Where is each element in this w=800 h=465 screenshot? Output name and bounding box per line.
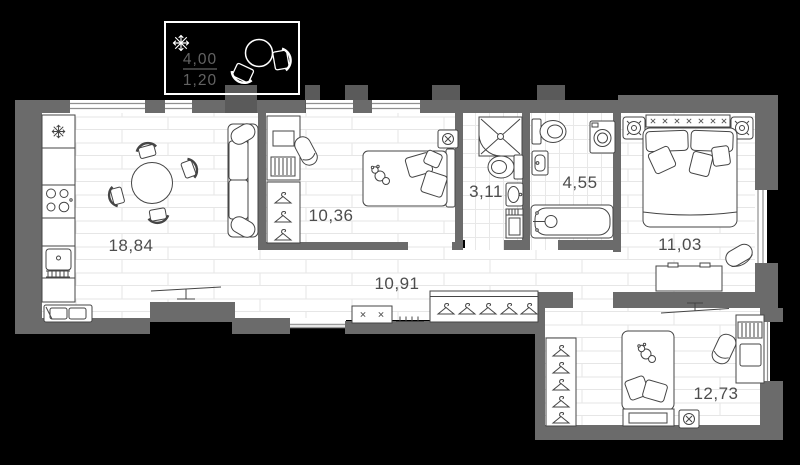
doorway-bathroom xyxy=(528,238,560,250)
doorway-bedroom-1 xyxy=(408,240,452,250)
doorway-bedroom-2 xyxy=(611,252,623,292)
washbasin xyxy=(506,183,523,206)
kitchen-counter xyxy=(42,148,75,185)
doorway-children-room xyxy=(573,290,613,310)
desk xyxy=(736,315,764,383)
window-bedroom-2 xyxy=(755,190,767,263)
balcony-table xyxy=(246,40,273,67)
wall-children-left xyxy=(535,308,545,425)
pillar xyxy=(345,85,368,100)
double-bed xyxy=(643,128,737,227)
wall-children-top-a xyxy=(535,292,573,308)
wall-children-bottom xyxy=(535,425,783,440)
room-area-label-bathroom: 4,55 xyxy=(562,173,597,192)
bathroom-cabinet xyxy=(506,209,523,238)
bench xyxy=(44,305,92,322)
toilet xyxy=(488,155,523,179)
stove-icon xyxy=(42,185,75,218)
entrance-niche-floor xyxy=(288,318,346,328)
wall-children-right-b xyxy=(760,381,783,440)
wall-right-upper xyxy=(755,113,778,190)
pillar xyxy=(225,85,257,113)
room-area-label-bedroom-1: 10,36 xyxy=(308,206,353,225)
room-area-label-children: 12,73 xyxy=(693,384,738,403)
snowflake-icon xyxy=(173,35,189,51)
wall-tv xyxy=(150,302,235,322)
kitchen-sink xyxy=(42,246,75,278)
lamp-icon xyxy=(623,117,645,139)
washing-machine-icon xyxy=(590,121,615,153)
wall-kitchen-bedroom1 xyxy=(258,113,266,250)
wall-entrance-left xyxy=(232,318,290,334)
fan-circle-x-icon xyxy=(679,410,699,428)
pillar xyxy=(537,85,565,100)
balcony-area-total: 4,00 xyxy=(183,51,217,68)
dining-table xyxy=(132,163,173,204)
kitchen-counter xyxy=(42,278,75,302)
single-bed xyxy=(622,331,674,426)
floor-plan-canvas: 4,00 1,20 xyxy=(0,0,800,465)
wall-right-mid xyxy=(755,263,778,292)
snowflake-icon xyxy=(52,125,65,138)
wardrobe xyxy=(267,182,300,243)
window-kitchen xyxy=(70,100,145,113)
washbasin xyxy=(532,151,548,175)
room-area-label-shower: 3,11 xyxy=(469,182,503,201)
electrical-panel xyxy=(352,306,392,323)
floor-plan-screenshot: 4,00 1,20 xyxy=(0,0,800,465)
room-area-label-kitchen-living: 18,84 xyxy=(108,236,153,255)
window-bedroom-1-a xyxy=(306,100,353,113)
balcony-area-counted: 1,20 xyxy=(183,72,217,89)
desk xyxy=(656,263,722,291)
shower-tray xyxy=(479,117,522,156)
room-area-label-bedroom-2: 11,03 xyxy=(658,235,702,254)
fan-circle-x-icon xyxy=(438,130,458,148)
kitchen-counter xyxy=(42,218,75,246)
pillar xyxy=(432,85,460,100)
doorway-shower xyxy=(465,238,506,250)
wall-shower-bottom xyxy=(504,240,530,250)
wall-top-right-thick xyxy=(618,95,778,113)
window-bedroom-1-b xyxy=(372,100,420,113)
wall-bathroom-bottom xyxy=(558,240,613,250)
bathtub xyxy=(531,205,613,238)
room-area-label-hallway: 10,91 xyxy=(374,274,419,293)
wardrobe xyxy=(546,338,576,426)
headboard xyxy=(646,115,730,127)
sofa xyxy=(228,121,258,240)
hall-wardrobe xyxy=(430,291,538,322)
toilet xyxy=(532,119,566,144)
wall-left xyxy=(15,113,42,334)
balcony-door xyxy=(165,100,192,113)
